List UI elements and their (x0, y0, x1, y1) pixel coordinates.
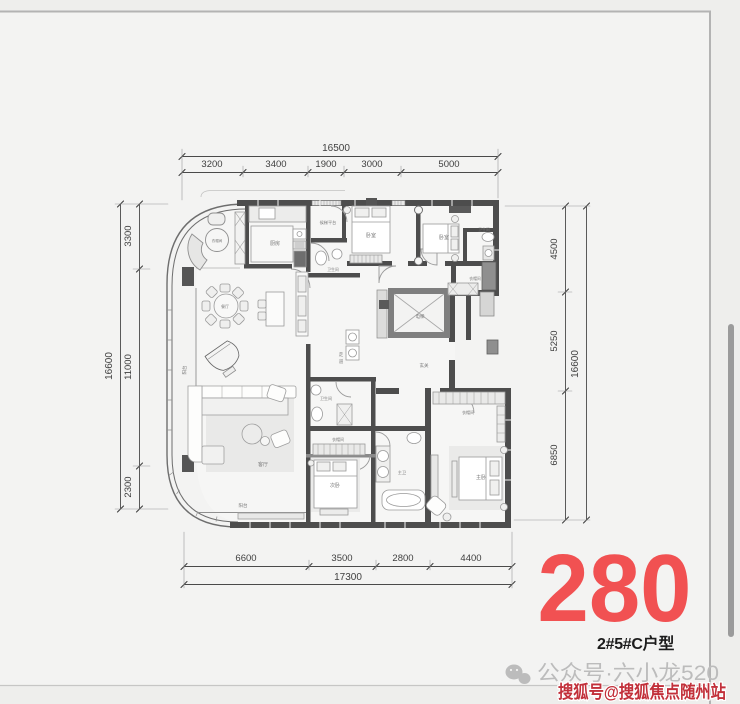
svg-text:16600: 16600 (570, 350, 581, 378)
svg-text:衣帽间: 衣帽间 (212, 238, 223, 243)
svg-text:阳台: 阳台 (181, 365, 188, 374)
svg-text:阳台: 阳台 (239, 502, 248, 509)
svg-text:主卧: 主卧 (476, 474, 486, 481)
svg-text:3300: 3300 (123, 225, 134, 246)
svg-text:卧室: 卧室 (366, 232, 376, 239)
svg-text:主卫: 主卫 (398, 469, 406, 475)
svg-text:4500: 4500 (549, 238, 560, 259)
svg-text:280: 280 (538, 535, 692, 642)
svg-text:5000: 5000 (438, 159, 459, 170)
svg-text:17300: 17300 (334, 572, 362, 583)
svg-text:次卧: 次卧 (330, 482, 340, 489)
svg-text:衣帽间: 衣帽间 (332, 436, 344, 442)
svg-text:5250: 5250 (549, 330, 560, 351)
svg-text:电梯: 电梯 (416, 313, 425, 320)
svg-text:6850: 6850 (549, 444, 560, 465)
svg-text:客厅: 客厅 (258, 461, 268, 468)
svg-text:2#5#C户型: 2#5#C户型 (597, 634, 674, 653)
svg-text:搜狐号@搜狐焦点随州站: 搜狐号@搜狐焦点随州站 (558, 682, 726, 702)
svg-text:厨房: 厨房 (270, 240, 280, 247)
svg-text:3200: 3200 (201, 159, 222, 170)
svg-text:2300: 2300 (123, 476, 134, 497)
svg-text:3000: 3000 (361, 159, 382, 170)
svg-text:3400: 3400 (265, 159, 286, 170)
svg-text:衣帽间: 衣帽间 (469, 276, 481, 281)
svg-text:4400: 4400 (460, 553, 481, 564)
svg-text:1900: 1900 (315, 159, 336, 170)
svg-text:候梯平台: 候梯平台 (320, 219, 337, 226)
svg-text:卧室: 卧室 (439, 234, 449, 241)
svg-text:3500: 3500 (331, 553, 352, 564)
svg-text:11000: 11000 (123, 354, 134, 380)
svg-text:16600: 16600 (104, 352, 115, 380)
svg-text:道: 道 (339, 358, 344, 365)
svg-text:卫生间: 卫生间 (320, 395, 332, 401)
svg-text:16500: 16500 (322, 143, 350, 154)
svg-text:卫生间: 卫生间 (327, 267, 339, 272)
svg-text:卫生间: 卫生间 (478, 227, 490, 232)
svg-text:衣帽间: 衣帽间 (462, 409, 474, 415)
svg-text:餐厅: 餐厅 (221, 303, 229, 309)
svg-text:2800: 2800 (392, 553, 413, 564)
svg-text:玄关: 玄关 (420, 362, 429, 369)
svg-text:6600: 6600 (235, 553, 256, 564)
